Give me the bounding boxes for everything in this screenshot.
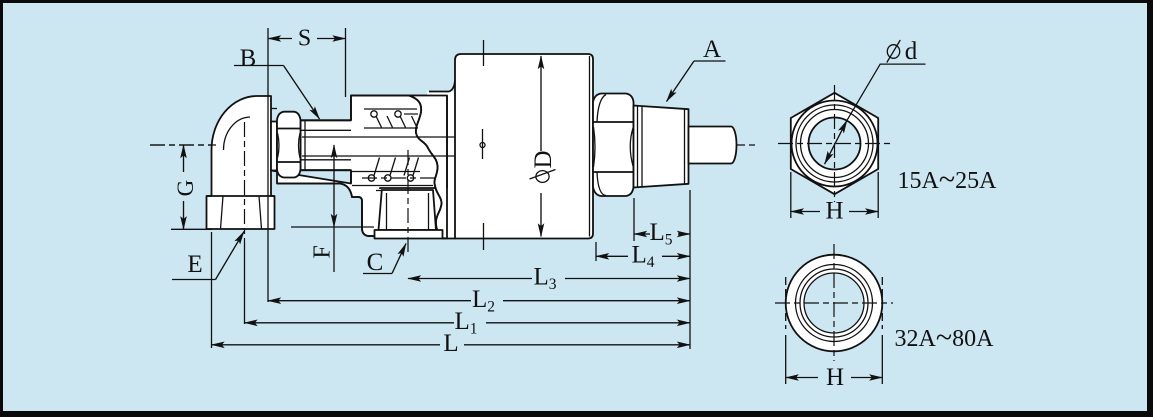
svg-text:15A~25A: 15A~25A [898,163,998,196]
svg-text:D: D [530,150,557,168]
svg-text:H: H [825,197,843,224]
svg-text:F: F [310,245,336,258]
svg-text:C: C [367,249,384,276]
svg-text:G: G [173,180,198,197]
svg-text:32A~80A: 32A~80A [895,321,995,354]
svg-text:A: A [703,36,721,63]
svg-text:d: d [905,38,918,65]
svg-text:S: S [298,25,311,51]
svg-text:L: L [443,330,458,357]
svg-text:H: H [826,364,844,391]
svg-text:B: B [240,45,257,72]
svg-text:E: E [187,251,202,278]
